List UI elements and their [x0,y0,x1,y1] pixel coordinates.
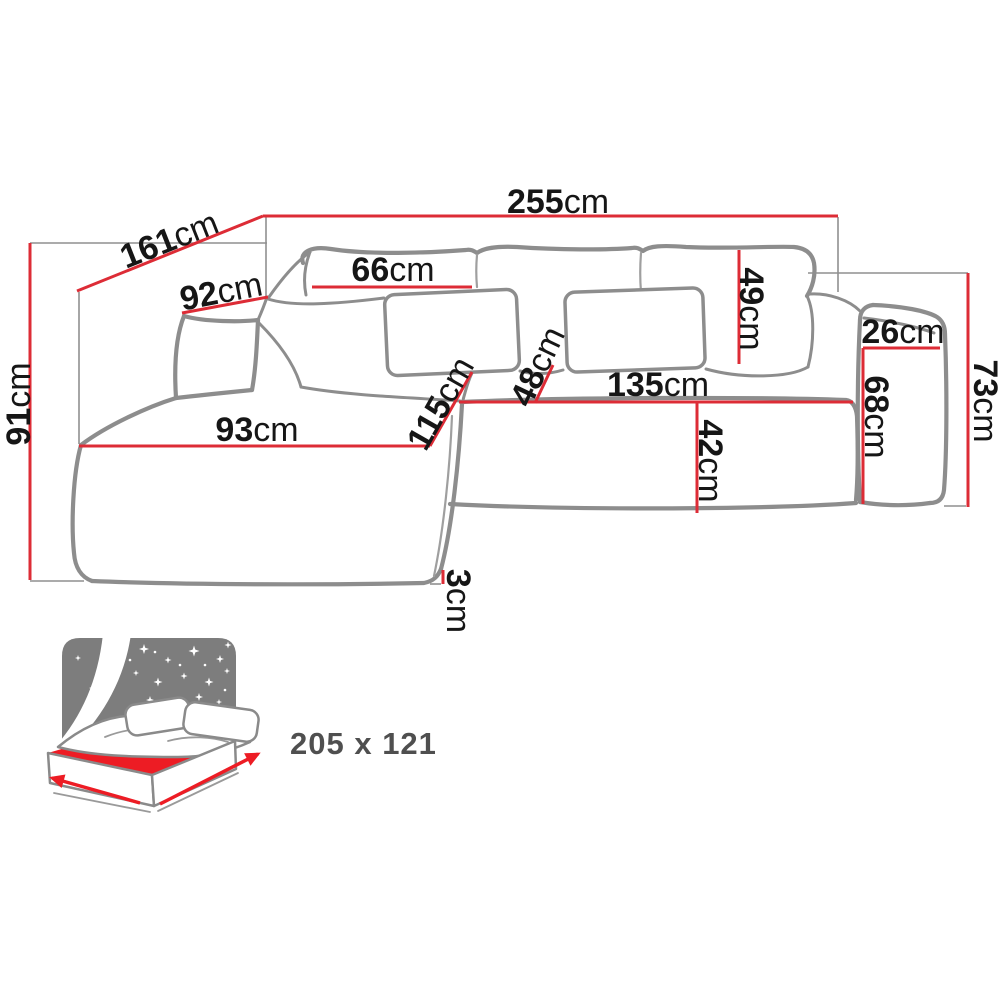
right-armrest-bottom [860,502,930,505]
dim-label-91cm: 91cm [0,362,38,445]
left-armrest-right-edge [252,320,258,390]
dim-label-49cm: 49cm [732,267,770,350]
dim-label-93cm: 93cm [215,411,298,449]
chaise-top-left-edge [81,398,176,445]
sofa-dimension-diagram: 255cm 161cm 92cm 66cm 49cm 26cm 73cm 68c… [0,0,1000,1000]
chaise-bottom-edge [92,569,441,584]
back-cushion-separator [640,253,641,292]
chaise-left-edge [73,445,92,581]
dim-label-135cm: 135cm [607,366,709,404]
right-armrest-back-edge [810,294,860,311]
right-back-pillow-edge [807,296,813,367]
left-armrest-front-top [184,316,258,321]
throw-pillow-right [565,288,706,373]
dim-label-73cm: 73cm [966,359,1000,442]
right-back-pillow-bottom [706,367,808,376]
diagram-svg: 255cm 161cm 92cm 66cm 49cm 26cm 73cm 68c… [0,0,1000,1000]
dim-label-68cm: 68cm [857,375,895,458]
back-cushion-separator [476,255,477,287]
dim-label-161cm: 161cm [115,204,224,277]
dim-label-26cm: 26cm [861,313,944,351]
dim-label-255cm: 255cm [507,183,609,221]
backrest-left-edge [305,252,310,295]
sleeping-size-label: 205 x 121 [290,726,437,761]
backrest-shelf-behind-arm [268,298,384,304]
dim-label-42cm: 42cm [691,419,729,502]
dim-label-92cm: 92cm [177,265,266,318]
armrest-chaise-crease [259,323,301,387]
dim-label-3cm: 3cm [439,569,477,633]
sleeping-function-icon: 205 x 121 [48,634,437,812]
right-armrest-right-edge [930,334,946,503]
left-armrest-bottom [176,390,252,398]
seat-bottom-edge [450,503,856,508]
dim-label-66cm: 66cm [351,251,434,289]
left-armrest-left-edge [175,316,184,398]
